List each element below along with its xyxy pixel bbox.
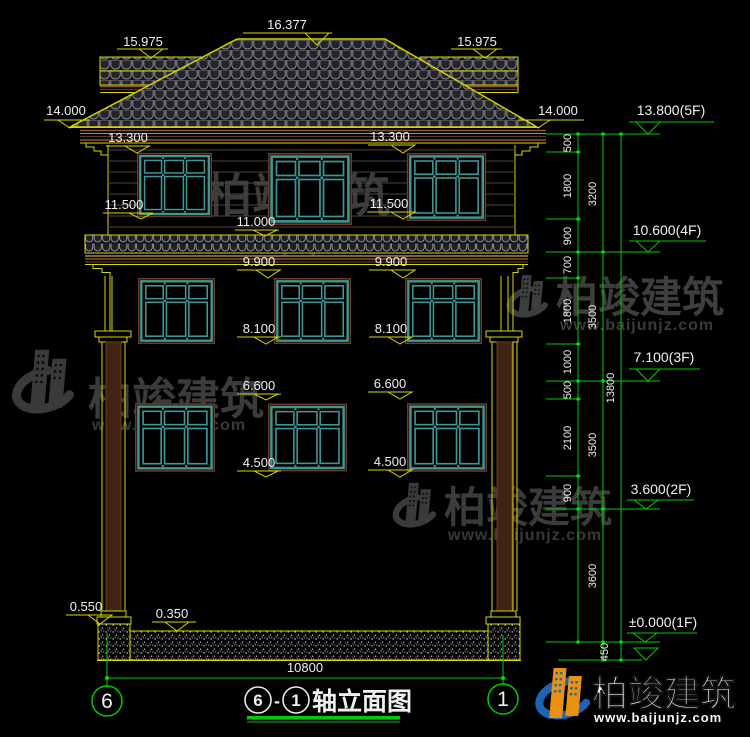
f2-window-center xyxy=(269,404,346,470)
floor-marker-5f: 13.800(5F) xyxy=(629,102,714,134)
svg-text:柏竣建筑: 柏竣建筑 xyxy=(556,274,724,321)
axis-bubble-left: 6 xyxy=(92,686,122,716)
svg-text:8.100: 8.100 xyxy=(243,321,276,336)
level-marker-0350: 0.350 xyxy=(152,606,196,631)
title-axis-from: 6 xyxy=(253,691,262,710)
svg-text:15.975: 15.975 xyxy=(123,34,163,49)
level-marker-wing-left: 15.975 xyxy=(117,34,168,58)
right-dimension-block: 500 1800 900 700 1800 1000 500 2100 900 … xyxy=(546,102,714,662)
pilaster-right xyxy=(486,276,522,660)
plinth-right xyxy=(488,624,520,660)
eave-corbel-right xyxy=(515,143,546,159)
floor-marker-3f: 7.100(3F) xyxy=(629,349,700,381)
svg-text:10.600(4F): 10.600(4F) xyxy=(633,222,701,238)
floor-marker-2f: 3.600(2F) xyxy=(627,481,694,509)
svg-text:4.500: 4.500 xyxy=(243,455,276,470)
mid-eave-corbel-right xyxy=(513,265,528,277)
attic-window-left xyxy=(138,154,212,217)
chain-500b: 500 xyxy=(562,381,574,399)
level-marker-4500-right: 4.500 xyxy=(368,454,412,477)
floor-dim-3200: 3200 xyxy=(587,182,599,206)
svg-text:9.900: 9.900 xyxy=(375,254,408,269)
title-dash: - xyxy=(274,691,280,711)
f2-window-left xyxy=(136,404,214,471)
svg-text:6.600: 6.600 xyxy=(243,378,276,393)
elevation-drawing-canvas: 柏竣建筑 www.baijunjz.com 柏竣建筑 www.baijunjz.… xyxy=(0,0,750,737)
plinth-left xyxy=(98,624,130,660)
level-marker-6600-right: 6.600 xyxy=(368,376,412,399)
chain-1800b: 1800 xyxy=(562,299,574,323)
title-axis-to: 1 xyxy=(291,691,300,710)
svg-text:0.550: 0.550 xyxy=(70,599,103,614)
svg-text:www.baijunjz.com: www.baijunjz.com xyxy=(559,317,714,334)
svg-text:13.800(5F): 13.800(5F) xyxy=(637,102,705,118)
floor-marker-1f: ±0.000(1F) xyxy=(627,614,697,642)
ground-slab xyxy=(97,631,521,661)
svg-text:柏竣建筑: 柏竣建筑 xyxy=(444,484,612,531)
foundation-marker-triangle xyxy=(634,648,658,660)
f3-window-center xyxy=(275,279,351,344)
level-marker-13300-right: 13.300 xyxy=(368,129,415,153)
title-text: 轴立面图 xyxy=(312,687,412,716)
attic-window-center xyxy=(269,154,351,224)
chain-700: 700 xyxy=(562,256,574,274)
watermark-right-top: 柏竣建筑 www.baijunjz.com xyxy=(506,274,724,334)
chain-900a: 900 xyxy=(562,227,574,245)
svg-text:8.100: 8.100 xyxy=(375,321,408,336)
chain-900b: 900 xyxy=(562,484,574,502)
chain-500a: 500 xyxy=(562,134,574,152)
svg-text:6: 6 xyxy=(101,690,113,713)
attic-window-right xyxy=(408,154,486,220)
svg-text:16.377: 16.377 xyxy=(267,17,307,32)
floor-marker-4f: 10.600(4F) xyxy=(629,222,706,252)
mid-eave-band xyxy=(85,235,528,277)
svg-text:0.350: 0.350 xyxy=(156,606,189,621)
brand-logo: 柏竣建筑 www.baijunjz.com xyxy=(535,668,736,725)
brand-building-icon xyxy=(549,668,582,718)
svg-text:11.500: 11.500 xyxy=(370,196,409,211)
chain-1000: 1000 xyxy=(562,350,574,374)
floor-dim-3500a: 3500 xyxy=(587,305,599,329)
svg-text:±0.000(1F): ±0.000(1F) xyxy=(629,614,697,630)
svg-text:14.000: 14.000 xyxy=(538,103,578,118)
svg-text:7.100(3F): 7.100(3F) xyxy=(634,349,695,365)
svg-text:6.600: 6.600 xyxy=(374,376,407,391)
svg-text:9.900: 9.900 xyxy=(243,254,276,269)
floor-dim-3500b: 3500 xyxy=(587,433,599,457)
svg-text:13.300: 13.300 xyxy=(108,130,148,145)
f2-window-right xyxy=(408,404,486,471)
brand-name: 柏竣建筑 xyxy=(592,673,736,714)
title-underline xyxy=(247,716,400,720)
main-wall xyxy=(110,276,513,631)
mid-eave-corbel-left xyxy=(85,265,110,277)
svg-text:www.baijunjz.com: www.baijunjz.com xyxy=(447,527,602,544)
f3-window-right xyxy=(406,279,482,344)
chain-2100: 2100 xyxy=(562,426,574,450)
chain-1800a: 1800 xyxy=(562,174,574,198)
floor-dim-3600: 3600 xyxy=(587,564,599,588)
level-marker-8100-right: 8.100 xyxy=(369,321,413,344)
foundation-dim: 450 xyxy=(599,643,611,661)
total-height-dim: 13800 xyxy=(605,373,617,404)
total-width-dim: 10800 xyxy=(287,660,323,675)
svg-text:15.975: 15.975 xyxy=(457,34,497,49)
svg-text:11.000: 11.000 xyxy=(237,214,276,229)
svg-text:3.600(2F): 3.600(2F) xyxy=(631,481,692,497)
level-marker-9900-left: 9.900 xyxy=(237,254,281,278)
level-marker-4500-left: 4.500 xyxy=(237,455,281,477)
f3-window-left xyxy=(139,279,215,344)
level-marker-9900-right: 9.900 xyxy=(369,254,415,278)
svg-text:14.000: 14.000 xyxy=(46,103,86,118)
attic-wall xyxy=(108,145,515,235)
brand-url: www.baijunjz.com xyxy=(593,710,722,725)
svg-text:11.500: 11.500 xyxy=(105,197,144,212)
svg-text:4.500: 4.500 xyxy=(374,454,407,469)
axis-bubble-right: 1 xyxy=(488,684,518,714)
level-marker-11000: 11.000 xyxy=(235,214,279,236)
level-marker-wing-right: 15.975 xyxy=(451,34,502,58)
drawing-title: 6 - 1 轴立面图 xyxy=(245,687,412,722)
eave-corbel-left xyxy=(80,143,108,159)
svg-text:13.300: 13.300 xyxy=(370,129,410,144)
svg-text:1: 1 xyxy=(497,688,509,711)
